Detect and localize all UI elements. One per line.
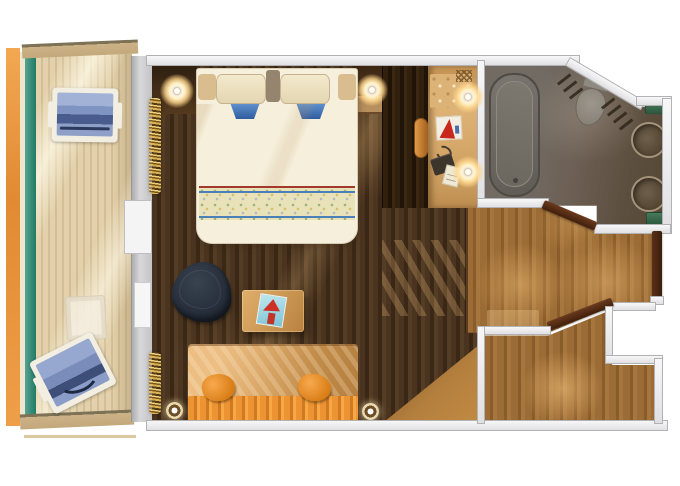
- band-blue-line-bottom: [199, 216, 355, 218]
- bathtub: [489, 73, 540, 197]
- sofa: [188, 344, 358, 424]
- vanity-toiletries: [456, 70, 472, 82]
- wall-lower-right: [654, 358, 663, 424]
- band-blue-line-top: [199, 191, 355, 193]
- bathtub-drain: [513, 178, 518, 183]
- red-book-blue-mark: [455, 125, 459, 133]
- wall-lower-top: [477, 326, 551, 335]
- curtain-bottom: [149, 352, 161, 414]
- lounge-chair-armrest: [114, 103, 122, 129]
- bed-pillow-right: [280, 74, 330, 104]
- wall-vanity-bathroom: [477, 60, 485, 208]
- sconce-right: [362, 403, 379, 420]
- wall-top: [146, 55, 580, 66]
- floorplan: [0, 0, 680, 486]
- bed-foot-band: [199, 186, 355, 220]
- balcony-door-opening: [134, 282, 151, 328]
- wall-notch-vertical: [605, 306, 613, 362]
- magazine-red-graphic: [263, 298, 282, 313]
- wall-lower-left: [477, 326, 485, 424]
- entry-door: [652, 231, 662, 297]
- luggage-tag: [442, 164, 462, 187]
- magazine-red-bar: [267, 313, 276, 325]
- red-book: [435, 115, 462, 140]
- wall-bottom: [146, 420, 668, 431]
- cabin-light-streaks: [382, 240, 478, 316]
- bed-pillow-left: [216, 74, 266, 104]
- balcony-orange-strip: [6, 48, 20, 426]
- balcony-deck-edge-line: [24, 435, 136, 438]
- bed-corner-cushion: [198, 74, 216, 100]
- wall-bathroom-right: [662, 98, 672, 234]
- magazine: [256, 293, 288, 328]
- bed-headboard-gap: [266, 70, 280, 102]
- bathtub-basin: [496, 81, 533, 187]
- balcony-sliding-door-leaf: [124, 200, 152, 254]
- king-bed: [196, 68, 358, 244]
- vanity: [428, 66, 478, 208]
- wall-bathroom-bottomleft: [477, 198, 549, 208]
- lounge-chair-top: [52, 87, 119, 142]
- lounge-chair-armrest: [48, 101, 56, 127]
- nightstand-shelf: [356, 96, 382, 112]
- curtain-top: [149, 98, 161, 194]
- bed-corner-cushion: [338, 74, 356, 100]
- cabin-corridor-seam: [465, 205, 468, 333]
- sconce-left: [166, 402, 183, 419]
- vanity-stool: [414, 118, 428, 158]
- armchair-seam: [178, 268, 224, 311]
- bed-duvet-shading: [196, 104, 358, 188]
